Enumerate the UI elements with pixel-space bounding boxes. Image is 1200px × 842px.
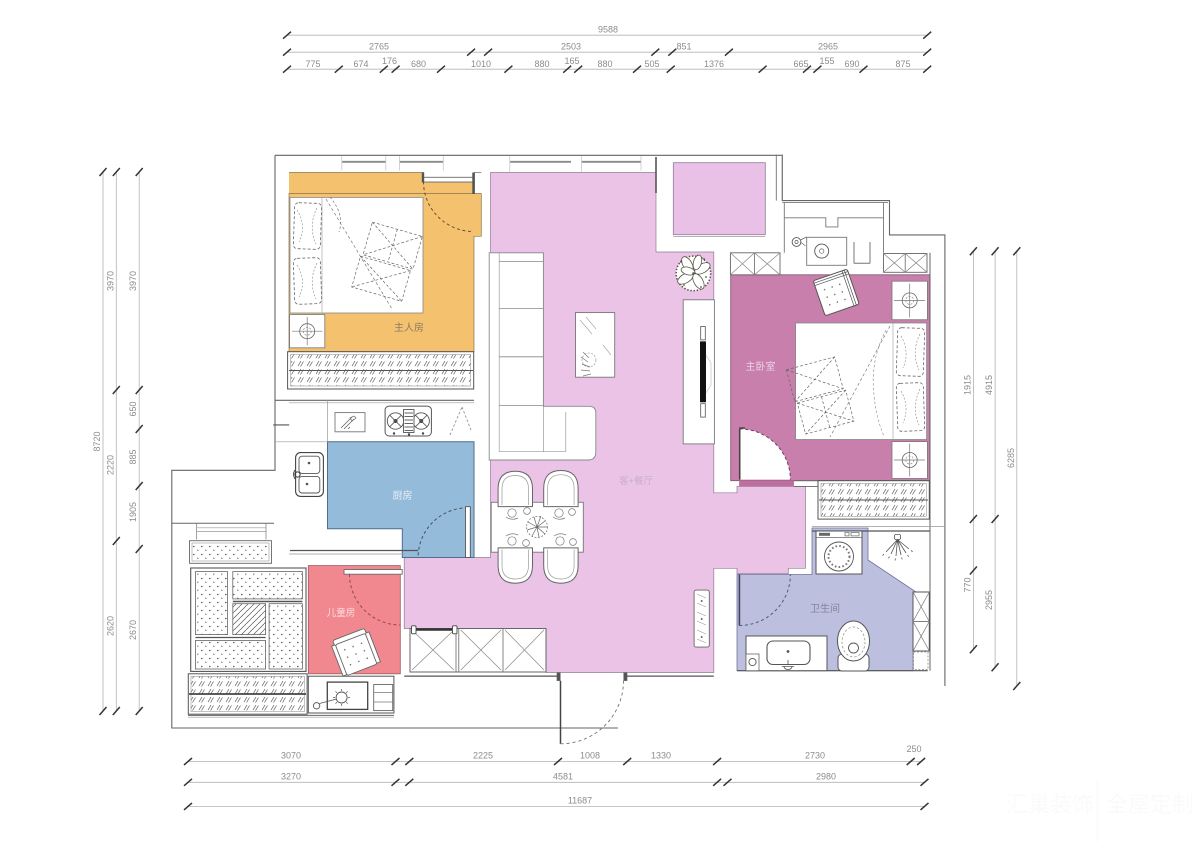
svg-text:2225: 2225	[473, 751, 493, 761]
svg-text:厨房: 厨房	[393, 489, 413, 502]
svg-text:155: 155	[819, 56, 834, 66]
svg-text:176: 176	[382, 56, 397, 66]
svg-text:2620: 2620	[105, 616, 115, 636]
svg-text:505: 505	[644, 59, 659, 69]
svg-text:汇巢装饰: 汇巢装饰	[1006, 792, 1094, 817]
svg-text:2765: 2765	[369, 42, 389, 52]
svg-text:客+餐厅: 客+餐厅	[619, 475, 654, 487]
svg-text:775: 775	[305, 59, 320, 69]
svg-text:4915: 4915	[984, 375, 994, 395]
svg-text:1330: 1330	[651, 751, 671, 761]
svg-text:2980: 2980	[816, 772, 836, 782]
svg-text:4581: 4581	[553, 772, 573, 782]
svg-text:2965: 2965	[818, 42, 838, 52]
svg-text:674: 674	[353, 59, 368, 69]
svg-text:250: 250	[906, 744, 921, 754]
svg-text:1915: 1915	[962, 375, 972, 395]
svg-text:2730: 2730	[805, 751, 825, 761]
svg-text:卫生间: 卫生间	[810, 602, 840, 615]
svg-text:2670: 2670	[128, 620, 138, 640]
svg-text:165: 165	[564, 56, 579, 66]
svg-text:690: 690	[844, 59, 859, 69]
svg-text:11687: 11687	[568, 796, 592, 806]
svg-text:875: 875	[895, 59, 910, 69]
svg-text:9588: 9588	[598, 25, 618, 35]
svg-text:851: 851	[676, 42, 691, 52]
svg-text:1008: 1008	[580, 751, 600, 761]
svg-text:儿童房: 儿童房	[327, 607, 356, 619]
svg-text:2955: 2955	[984, 590, 994, 610]
svg-text:主人房: 主人房	[394, 321, 424, 334]
svg-text:665: 665	[793, 59, 808, 69]
svg-text:3270: 3270	[281, 772, 301, 782]
svg-text:880: 880	[534, 59, 549, 69]
svg-text:1905: 1905	[128, 502, 138, 522]
svg-text:650: 650	[128, 401, 138, 416]
svg-text:3970: 3970	[128, 271, 138, 291]
svg-text:885: 885	[128, 449, 138, 464]
svg-text:680: 680	[411, 59, 426, 69]
svg-text:880: 880	[597, 59, 612, 69]
svg-text:3970: 3970	[105, 271, 115, 291]
svg-text:1010: 1010	[471, 59, 491, 69]
svg-text:8720: 8720	[92, 431, 102, 451]
svg-text:1376: 1376	[704, 59, 724, 69]
svg-text:2220: 2220	[105, 455, 115, 475]
svg-text:3070: 3070	[281, 751, 301, 761]
svg-text:6285: 6285	[1006, 448, 1016, 468]
svg-text:主卧室: 主卧室	[746, 360, 776, 373]
svg-text:2503: 2503	[561, 42, 581, 52]
svg-text:770: 770	[962, 577, 972, 592]
svg-text:全屋定制: 全屋定制	[1106, 792, 1194, 817]
